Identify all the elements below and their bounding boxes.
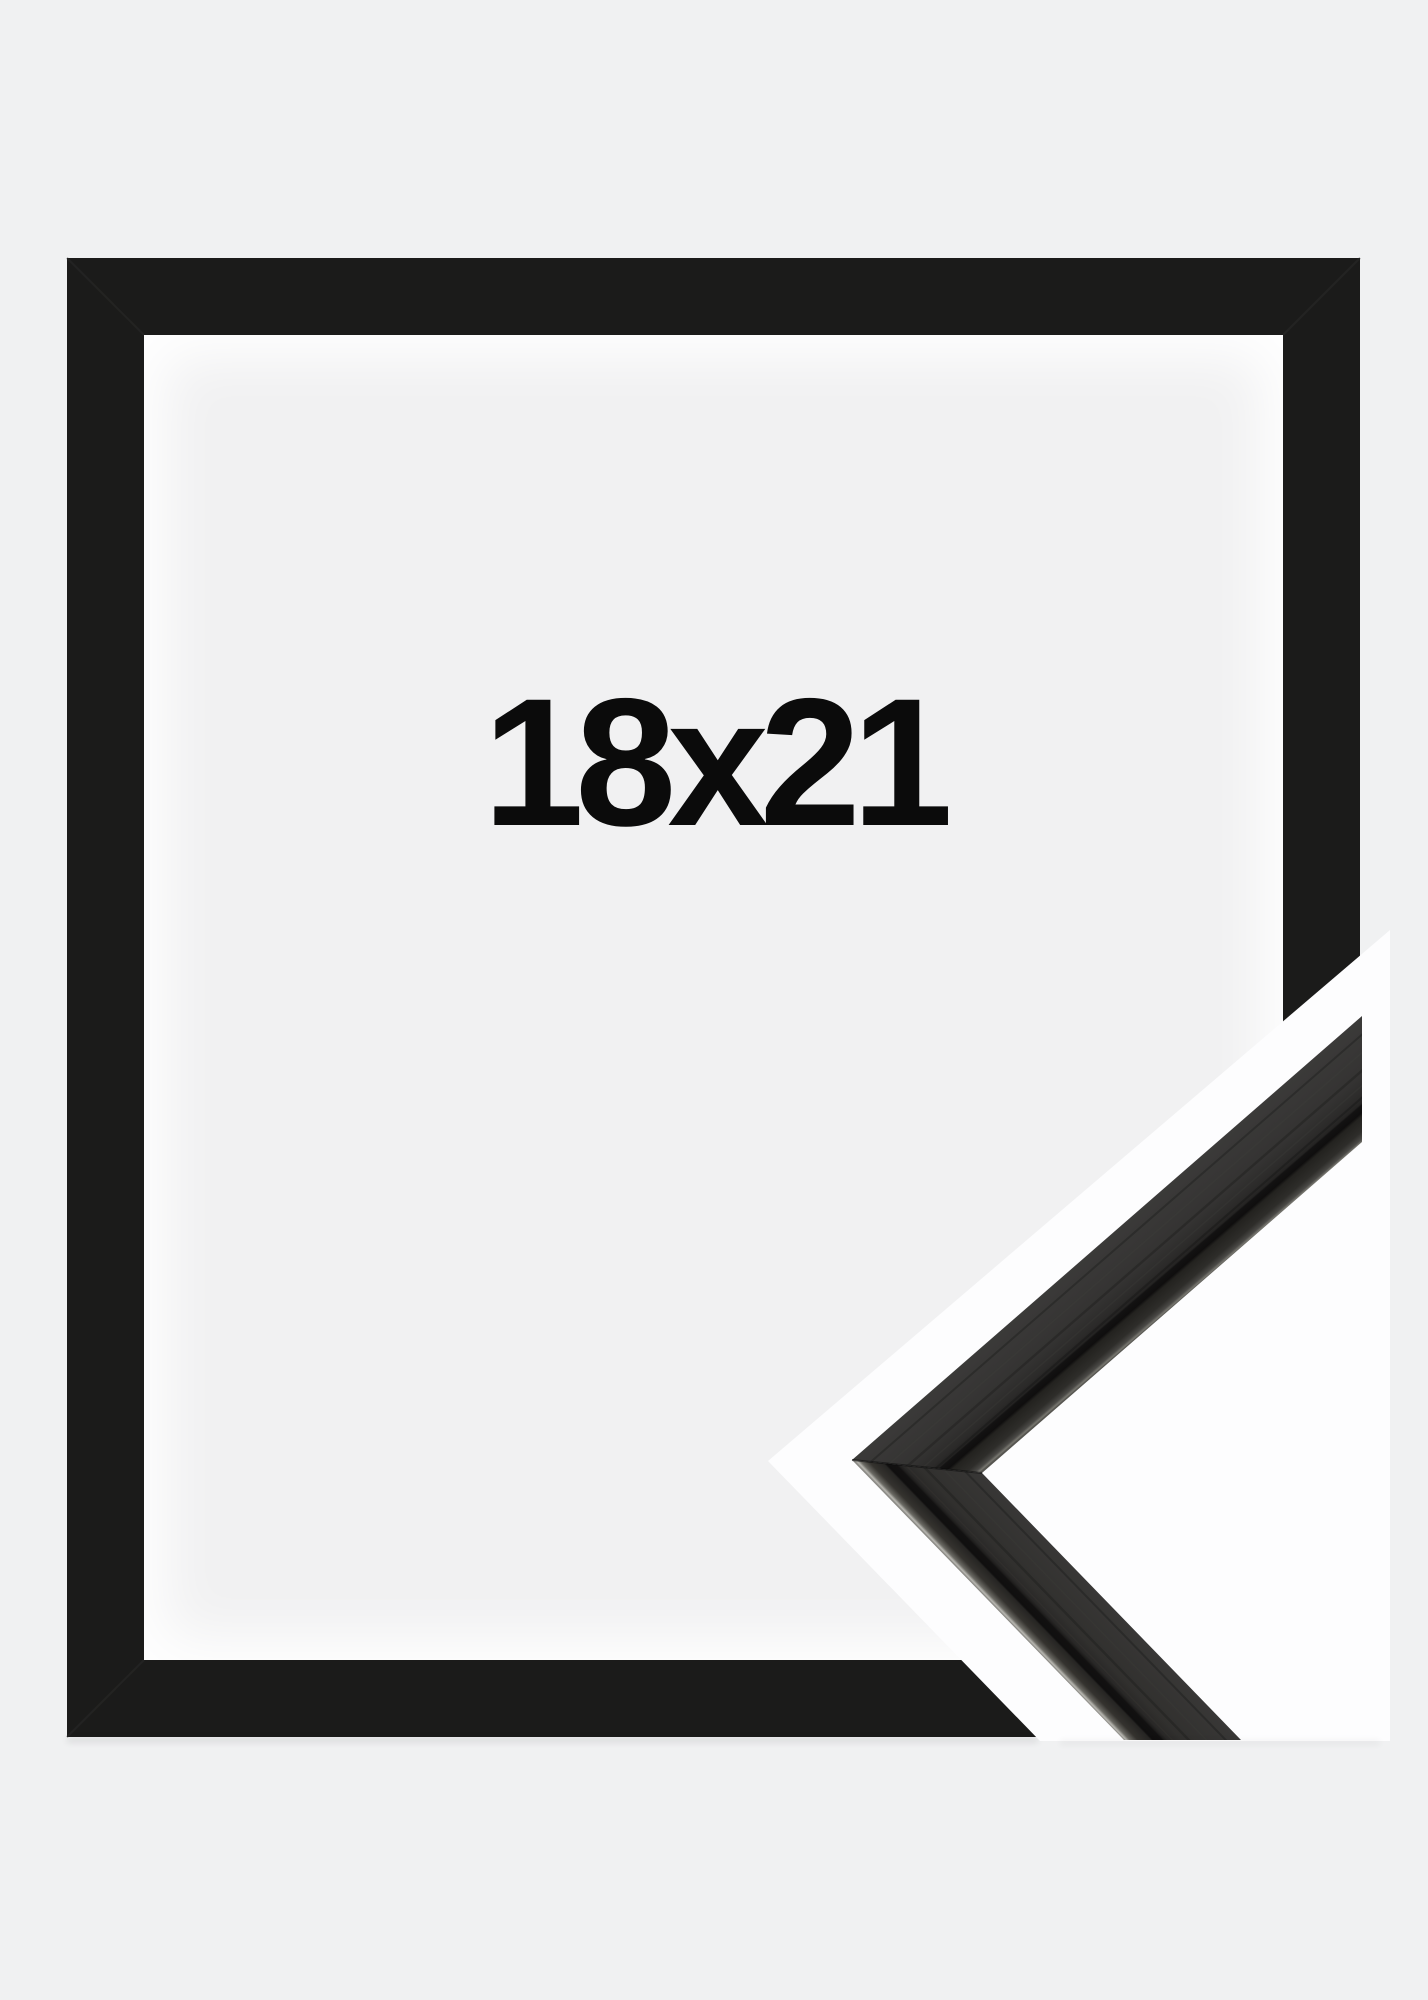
frame-inner-area: 18x21: [144, 335, 1283, 1660]
picture-frame: 18x21: [67, 258, 1360, 1737]
product-image: 18x21: [0, 0, 1428, 2000]
size-label: 18x21: [144, 671, 1283, 853]
frame-bottom-shadow: [67, 1738, 1038, 1742]
sample-bottom-shadow: [1060, 1741, 1380, 1744]
